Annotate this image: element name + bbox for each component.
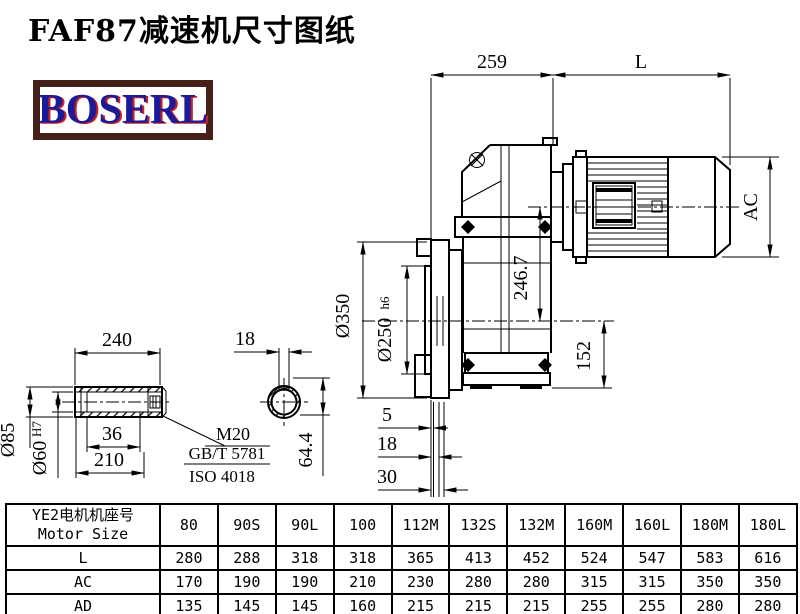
dim-base-height: 152	[573, 341, 595, 371]
dim-flange-od: Ø350	[332, 294, 354, 338]
table-row-label: AC	[6, 570, 160, 594]
dim-motor-length: L	[635, 51, 647, 73]
table-cell: 280	[739, 594, 797, 614]
table-cell: 315	[565, 570, 623, 594]
dim-motor-diameter: AC	[740, 193, 762, 221]
table-cell: 210	[334, 570, 392, 594]
dimension-spigot-250h6: Ø250 h6	[374, 266, 426, 374]
table-cell: 280	[449, 570, 507, 594]
table-row-label: L	[6, 546, 160, 570]
motor-nameplate	[593, 183, 635, 228]
shaft-cross-section	[260, 348, 308, 426]
table-col-90L: 90L	[276, 504, 334, 546]
drawing-page: FAF87减速机尺寸图纸 BOSERL	[0, 0, 800, 614]
table-cell: 413	[449, 546, 507, 570]
dim-bore-d: Ø60	[29, 441, 51, 475]
table-cell: 280	[681, 594, 739, 614]
table-cell: 230	[392, 570, 450, 594]
table-cell: 255	[565, 594, 623, 614]
table-col-180M: 180M	[681, 504, 739, 546]
dim-shaft-od: Ø85	[0, 423, 19, 457]
dimension-60H7: Ø60 H7	[29, 392, 73, 478]
table-cell: 583	[681, 546, 739, 570]
dim-length-210: 210	[94, 449, 124, 471]
table-cell: 280	[507, 570, 565, 594]
table-cell: 160	[334, 594, 392, 614]
dimension-keyway-18: 18	[234, 328, 312, 352]
dim-offset-30: 30	[377, 466, 397, 488]
table-col-160M: 160M	[565, 504, 623, 546]
dimension-152: 152	[552, 321, 612, 388]
dimension-240: 240	[75, 329, 160, 385]
dim-depth-36: 36	[102, 423, 122, 445]
dim-keyway-height: 64.4	[295, 433, 317, 468]
lifting-eye-icon	[470, 153, 485, 168]
table-col-132M: 132M	[507, 504, 565, 546]
table-cell: 135	[160, 594, 218, 614]
bolt-icons	[461, 220, 552, 372]
thread-spec: M20	[216, 424, 250, 444]
table-cell: 318	[276, 546, 334, 570]
table-col-160L: 160L	[623, 504, 681, 546]
hollow-shaft-section	[62, 387, 172, 417]
table-col-180L: 180L	[739, 504, 797, 546]
dim-keyway-width: 18	[235, 328, 255, 350]
dim-bore-fit: H7	[29, 421, 44, 437]
table-cell: 145	[276, 594, 334, 614]
table-header-en: Motor Size	[7, 525, 159, 544]
table-cell: 524	[565, 546, 623, 570]
table-cell: 215	[507, 594, 565, 614]
table-cell: 365	[392, 546, 450, 570]
standard-iso: ISO 4018	[189, 467, 255, 486]
dim-spigot-fit: h6	[377, 296, 392, 310]
table-header-motor-size: YE2电机机座号Motor Size	[6, 504, 160, 546]
table-cell: 170	[160, 570, 218, 594]
table-col-90S: 90S	[218, 504, 276, 546]
dimension-flange-offsets: 5 18 30	[377, 400, 468, 497]
table-cell: 350	[739, 570, 797, 594]
table-cell: 145	[218, 594, 276, 614]
dimension-36-210: 36 210	[76, 412, 144, 478]
dim-offset-18: 18	[377, 433, 397, 455]
table-cell: 616	[739, 546, 797, 570]
table-cell: 280	[160, 546, 218, 570]
dim-shaft-length: 240	[102, 329, 132, 351]
motor-size-table: YE2电机机座号Motor Size8090S90L100112M132S132…	[5, 503, 798, 614]
standard-gb: GB/T 5781	[189, 444, 266, 463]
table-cell: 315	[623, 570, 681, 594]
table-row-AD: AD135145145160215215215255255280280	[6, 594, 797, 614]
table-row-L: L280288318318365413452524547583616	[6, 546, 797, 570]
gearbox-housing	[455, 138, 557, 389]
dim-axis-distance: 246.7	[510, 256, 532, 301]
table-cell: 215	[449, 594, 507, 614]
table-cell: 547	[623, 546, 681, 570]
table-cell: 318	[334, 546, 392, 570]
table-cell: 215	[392, 594, 450, 614]
table-row-AC: AC170190190210230280280315315350350	[6, 570, 797, 594]
motor-size-table-wrap: YE2电机机座号Motor Size8090S90L100112M132S132…	[5, 503, 796, 614]
table-cell: 350	[681, 570, 739, 594]
dim-spigot-d: Ø250	[374, 318, 396, 362]
table-col-100: 100	[334, 504, 392, 546]
dim-housing-width: 259	[477, 51, 507, 73]
table-cell: 452	[507, 546, 565, 570]
table-cell: 255	[623, 594, 681, 614]
thread-callout: M20 GB/T 5781 ISO 4018	[163, 416, 270, 486]
dimension-246-7: 246.7	[510, 207, 540, 321]
table-row-label: AD	[6, 594, 160, 614]
table-col-112M: 112M	[392, 504, 450, 546]
dimension-64-4: 64.4	[293, 378, 330, 476]
table-col-80: 80	[160, 504, 218, 546]
dim-offset-5: 5	[382, 404, 392, 426]
table-cell: 190	[276, 570, 334, 594]
table-cell: 190	[218, 570, 276, 594]
table-cell: 288	[218, 546, 276, 570]
table-header-cn: YE2电机机座号	[7, 506, 159, 525]
table-col-132S: 132S	[449, 504, 507, 546]
